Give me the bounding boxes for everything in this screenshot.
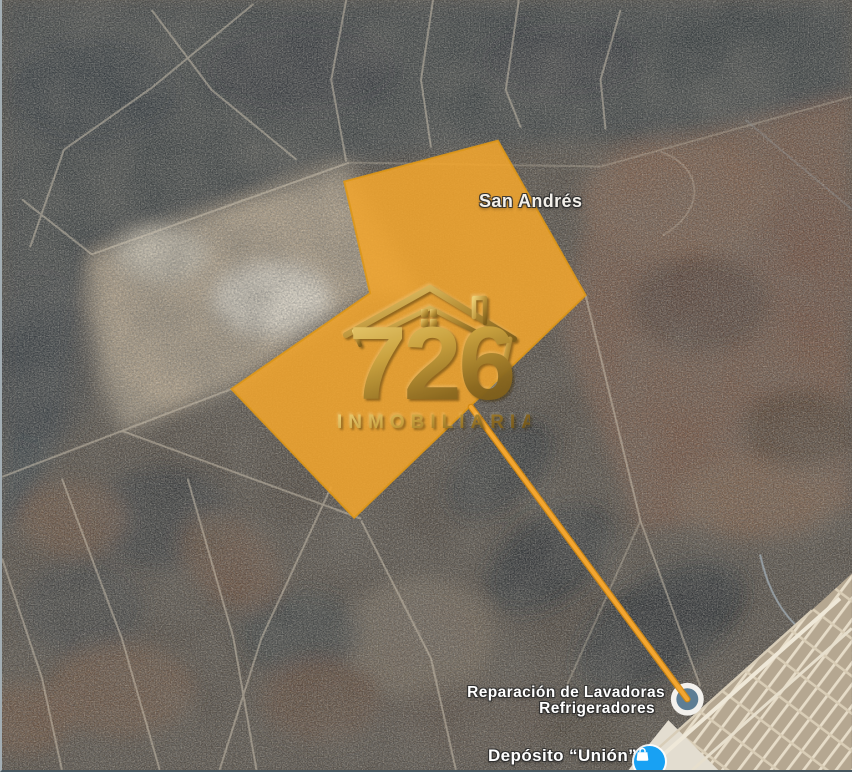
business-label-line2: Refrigeradores bbox=[467, 701, 665, 717]
shopping-bag-icon bbox=[634, 746, 651, 763]
connector-line bbox=[471, 407, 687, 699]
place-label-san-andres: San Andrés bbox=[479, 191, 582, 212]
agency-watermark: 726 INMOBILIARIA bbox=[332, 283, 530, 441]
logo-subtitle: INMOBILIARIA bbox=[332, 412, 530, 434]
place-label-business: Reparación de Lavadoras Refrigeradores bbox=[467, 685, 665, 717]
poi-deposito-union[interactable] bbox=[634, 746, 665, 772]
satellite-map[interactable]: 726 INMOBILIARIA San Andrés Reparación d… bbox=[0, 0, 852, 772]
logo-number: 726 bbox=[332, 312, 530, 416]
business-label-line1: Reparación de Lavadoras bbox=[467, 685, 665, 701]
place-label-deposito: Depósito “Unión” bbox=[488, 746, 637, 766]
